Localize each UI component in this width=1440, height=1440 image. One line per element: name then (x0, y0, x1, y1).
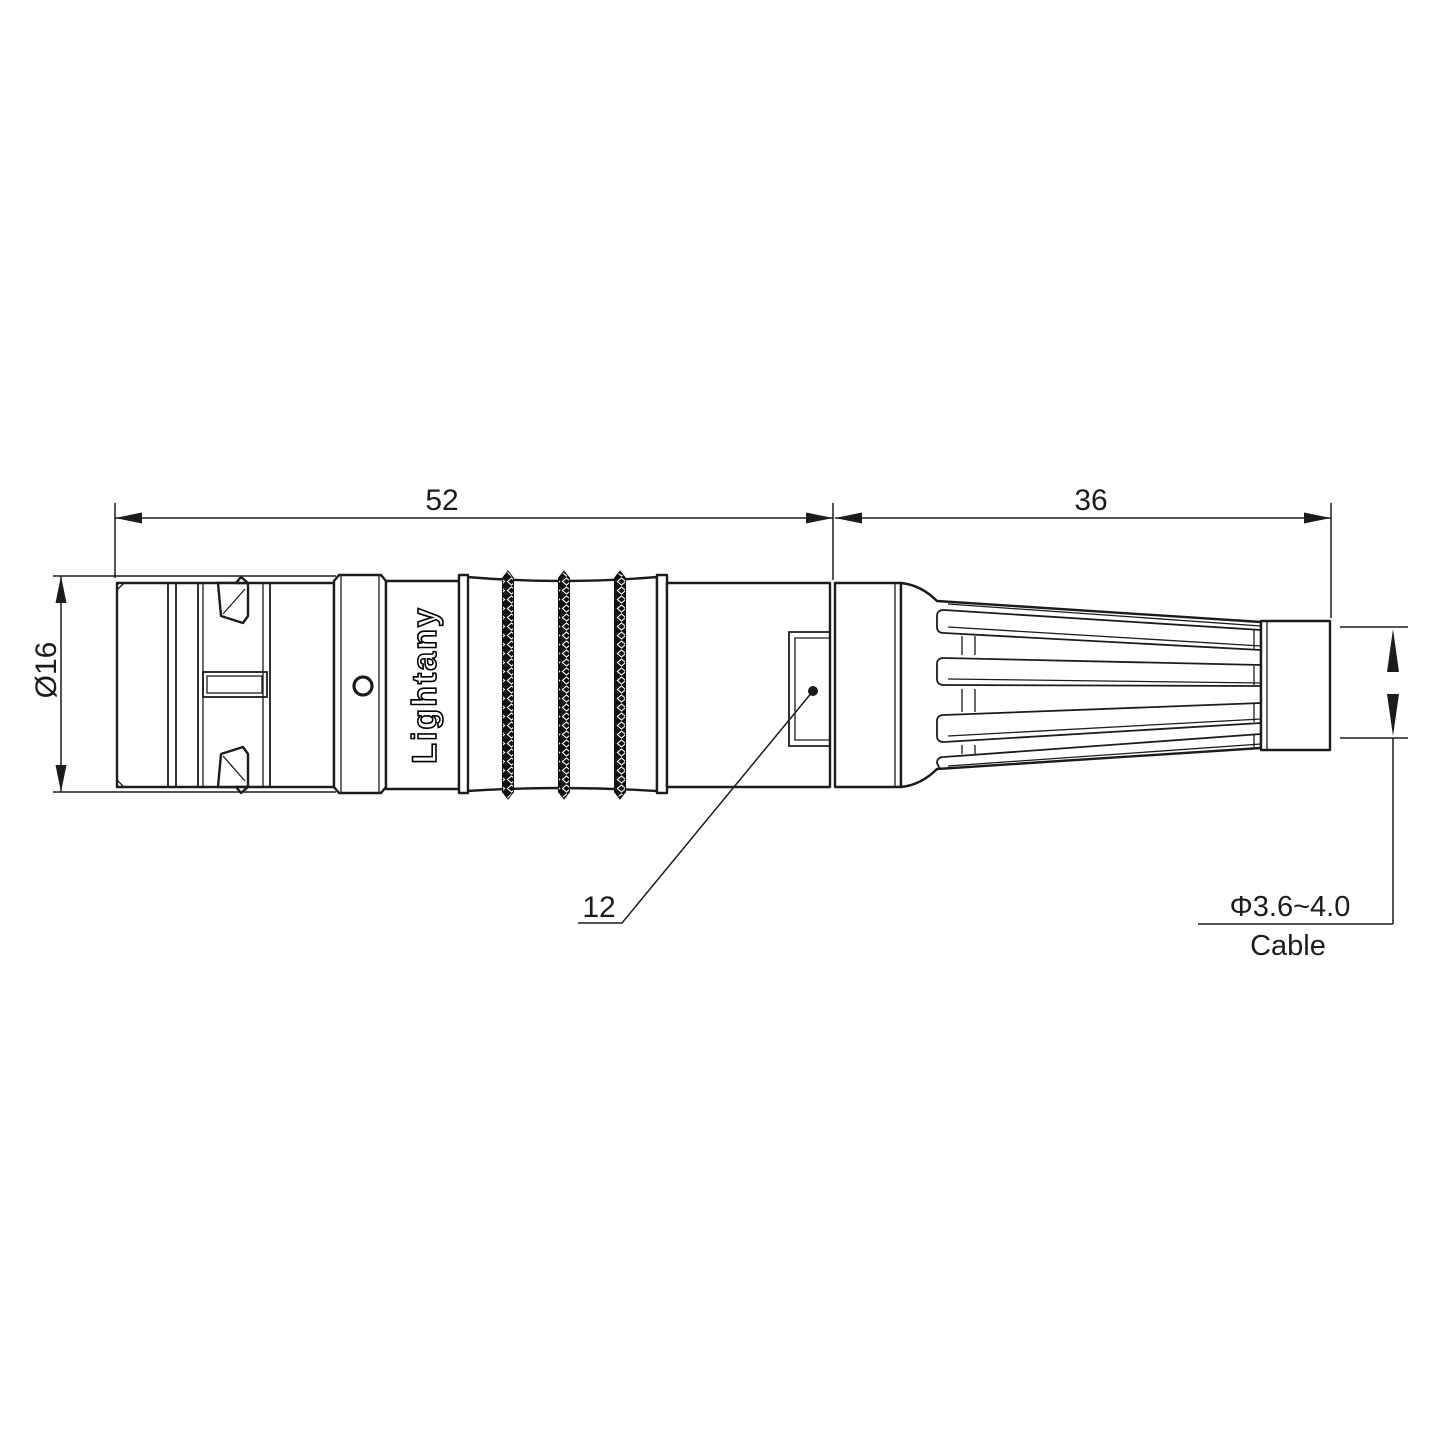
diameter-16-label: Ø16 (30, 642, 63, 699)
knurl-band (503, 571, 514, 799)
connector-front-shell (117, 577, 334, 793)
cable-diameter-label: Φ3.6~4.0 (1230, 891, 1351, 923)
knurl-section (459, 571, 667, 799)
keyway-12-label: 12 (582, 891, 615, 924)
coupling-collar (334, 575, 386, 793)
dim-36-label: 36 (1074, 484, 1107, 517)
rear-ring (667, 583, 835, 787)
knurl-band (615, 571, 626, 799)
cable-word-label: Cable (1250, 930, 1326, 962)
brand-ring: Lightany (386, 581, 459, 789)
strain-relief-boot (901, 583, 1261, 787)
connector-body-text: Lightany (406, 606, 444, 764)
bayonet-latch-bottom (218, 747, 248, 793)
dimension-front-length: 52 (115, 484, 833, 580)
cable-gland (835, 583, 901, 787)
knurl-band (559, 571, 570, 799)
collar-hole (354, 677, 372, 695)
drawing-canvas: Lightany (0, 0, 1440, 1440)
boot-end-sleeve (1261, 621, 1330, 750)
bayonet-latch-top (218, 577, 248, 623)
dim-52-label: 52 (425, 484, 458, 517)
